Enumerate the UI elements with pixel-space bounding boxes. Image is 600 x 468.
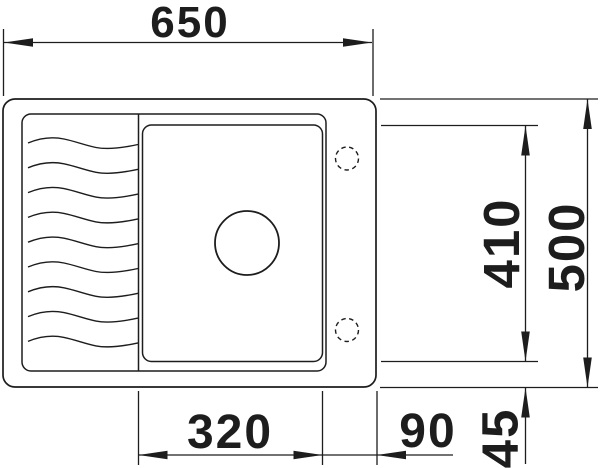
wave-line: [28, 212, 138, 223]
sink-dimension-drawing: 650 500 410 45 320 90: [0, 0, 600, 468]
arrowhead-down-icon: [521, 332, 530, 362]
dimension-label-90: 90: [399, 405, 456, 458]
arrowhead-up-icon: [583, 99, 592, 129]
arrowhead-right-icon: [343, 38, 372, 46]
wave-line: [28, 287, 138, 298]
arrowhead-up-icon: [521, 126, 530, 156]
dimension-bowl-width-and-right-offset: 320 90: [139, 391, 457, 465]
wave-line: [28, 311, 138, 322]
dimension-bottom-offset: 45: [472, 388, 530, 468]
dimension-label-45: 45: [472, 408, 529, 468]
dimension-label-320: 320: [187, 406, 273, 459]
wave-line: [28, 336, 138, 347]
wave-line: [28, 163, 138, 174]
sink-rim-outline: [3, 99, 376, 387]
dimension-label-650: 650: [150, 0, 229, 47]
drain-hole-circle: [215, 211, 279, 275]
dimension-label-410: 410: [473, 197, 530, 288]
dimension-label-500: 500: [538, 201, 595, 292]
arrowhead-left-icon: [4, 38, 33, 46]
arrowhead-right-icon: [294, 451, 323, 459]
wave-line: [28, 237, 138, 248]
basin-inner-outline: [143, 125, 323, 362]
wave-line: [28, 187, 138, 198]
tray-outline: [22, 114, 326, 371]
tap-hole-bottom-icon: [336, 319, 359, 342]
dimension-bowl-depth: 410: [381, 126, 538, 362]
technical-drawing-page: 650 500 410 45 320 90: [0, 0, 600, 468]
dimension-overall-width: 650: [4, 0, 374, 96]
wave-line: [28, 262, 138, 273]
arrowhead-left-icon: [139, 451, 168, 459]
sink-plan: [3, 99, 376, 387]
arrowhead-down-icon: [583, 358, 592, 388]
wave-line: [28, 138, 138, 149]
tap-hole-top-icon: [336, 147, 359, 170]
drainboard-waves: [28, 138, 138, 347]
